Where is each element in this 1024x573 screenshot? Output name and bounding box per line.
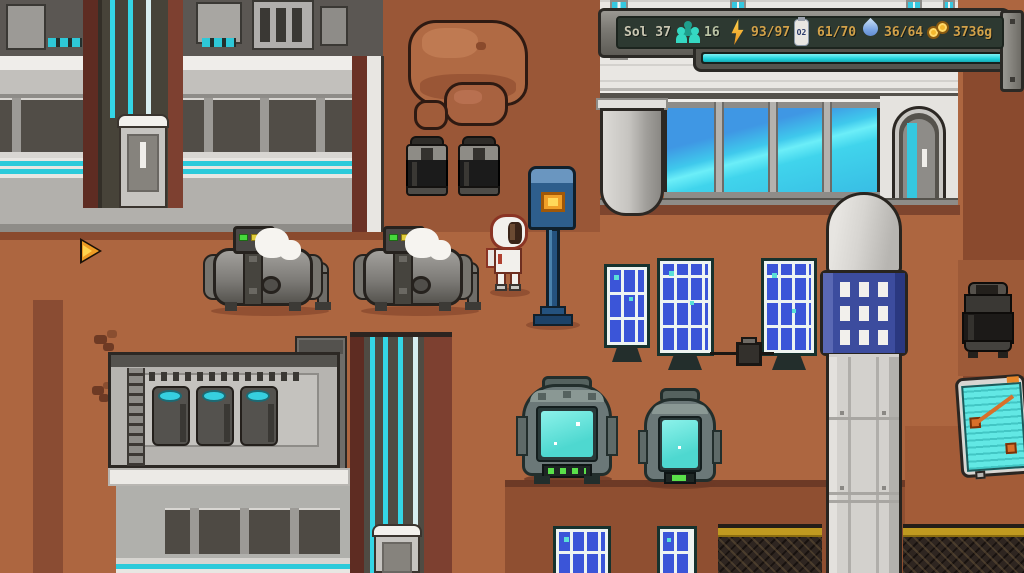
roof-equipment <box>6 4 46 50</box>
tank-bolt <box>249 288 257 294</box>
solar-glint <box>772 273 777 278</box>
platform-wall-strip <box>111 355 337 367</box>
window-band <box>0 98 383 152</box>
rocket-seam <box>876 357 879 573</box>
rivet <box>1010 19 1015 24</box>
boulder-highlight <box>422 28 478 58</box>
boulder <box>414 100 448 130</box>
tech-node <box>1005 442 1017 454</box>
shaft-side <box>83 0 98 208</box>
pipe-foot <box>465 302 481 310</box>
junction-box[interactable] <box>736 342 762 366</box>
solar-glass <box>663 264 708 350</box>
shaft-side <box>424 332 452 573</box>
machine-side-pod <box>516 416 528 456</box>
tank-bolt <box>249 256 257 262</box>
railing <box>149 372 299 381</box>
power-value: 93/97 <box>751 25 790 40</box>
arched-door[interactable] <box>892 106 946 202</box>
rocket[interactable] <box>820 192 908 573</box>
steam-puff <box>429 240 451 260</box>
rocket-seam <box>829 500 899 503</box>
tank-lid <box>202 390 226 402</box>
coins-icon <box>927 21 951 41</box>
airlock-door[interactable] <box>372 524 422 573</box>
rivet <box>1010 77 1015 82</box>
window-pillar <box>260 98 269 152</box>
storage-tank[interactable] <box>152 386 190 446</box>
solar-panel[interactable] <box>761 258 817 356</box>
astronaut-chest-strap <box>498 254 502 264</box>
tank-lid <box>246 390 270 402</box>
tank-shade <box>268 404 274 442</box>
rocket-rivet <box>882 411 886 415</box>
power-cable <box>760 352 774 355</box>
person-front-body <box>676 34 687 43</box>
monitor-corner-light <box>1007 376 1019 383</box>
shaft-side <box>350 332 364 573</box>
rock-formation[interactable] <box>398 12 548 138</box>
barrel-hatch <box>976 285 998 294</box>
incubator-machine-small[interactable] <box>638 388 722 488</box>
incubator-machine-large[interactable] <box>516 376 618 484</box>
wall-white-stripe <box>108 468 350 486</box>
monitor-foot <box>975 471 986 480</box>
solar-glint <box>669 271 674 276</box>
window-pillar <box>190 508 199 554</box>
solar-glint <box>614 275 619 280</box>
entrance-column-body <box>600 108 664 216</box>
machine-bolt <box>563 391 571 398</box>
storage-tank[interactable] <box>240 386 278 446</box>
door-handle <box>140 142 146 168</box>
credits-value: 3736g <box>953 25 992 40</box>
sol-counter: Sol 37 <box>624 25 671 40</box>
rocket-seam <box>829 492 899 495</box>
tank-lid <box>158 390 182 402</box>
barrel-emblem <box>421 148 433 160</box>
window-pillar <box>316 98 325 152</box>
energy-line <box>128 0 133 118</box>
solar-panel[interactable] <box>604 264 650 348</box>
tank-foot <box>289 302 301 311</box>
storage-tank[interactable] <box>196 386 234 446</box>
building-left <box>0 0 383 232</box>
solar-panel-base <box>772 354 806 370</box>
post-screen-glow <box>548 198 558 206</box>
airlock-door[interactable] <box>117 114 169 208</box>
rocket-window-row <box>840 330 888 345</box>
barrel-rim <box>964 340 1012 352</box>
solar-panel-base <box>668 354 702 370</box>
oxygen-tank-icon: O2 <box>794 19 809 46</box>
solar-glint <box>667 538 671 542</box>
corner-pillar <box>352 56 367 232</box>
corner-edge <box>381 56 384 232</box>
astronaut-boot <box>495 284 507 291</box>
window-pillar <box>12 98 21 152</box>
oxygen-tank-cap <box>798 17 805 21</box>
barrel-large[interactable] <box>960 282 1016 360</box>
elevator-shaft <box>83 0 183 208</box>
roof-vent <box>276 8 286 42</box>
solar-glint <box>564 537 569 542</box>
indicator-lights <box>48 38 82 47</box>
solar-panel-base <box>612 346 642 362</box>
barrel-rim <box>458 186 500 196</box>
people-icon <box>676 20 700 44</box>
boulder-crack <box>476 42 486 50</box>
tank-bolt <box>399 288 407 294</box>
machine-side-pod <box>606 416 618 456</box>
barrel-foot <box>968 352 978 358</box>
water-value: 36/64 <box>884 25 923 40</box>
rocket-window-row <box>840 282 888 297</box>
tank-foot <box>225 302 237 311</box>
tank-shade <box>224 404 230 442</box>
rocket-seam <box>829 417 899 420</box>
wall <box>0 178 383 224</box>
rocket-band-highlight <box>823 273 833 353</box>
research-monitor[interactable] <box>955 374 1024 479</box>
pipe-foot <box>315 302 331 310</box>
machine-screen <box>541 411 593 457</box>
screen-sparkle <box>678 446 681 449</box>
rocket-body-highlight <box>829 357 837 573</box>
machine-bolt <box>538 393 546 400</box>
game-viewport: Sol 37 16 93/97 O2 61/70 36/64 3736g <box>0 0 1024 573</box>
hud-progress-fill <box>703 54 1002 62</box>
steam-puff <box>279 240 301 260</box>
oxygen-tank-label: O2 <box>795 28 808 37</box>
rocket-rivet <box>840 486 844 490</box>
status-lights <box>548 468 586 474</box>
window-pillar <box>290 508 299 554</box>
tank-hatch <box>261 276 281 294</box>
solar-glass <box>610 270 644 342</box>
quest-arrow-indicator <box>80 238 102 264</box>
barrel-highlight <box>464 162 469 186</box>
boulder <box>444 82 508 126</box>
astronaut-boot <box>509 284 521 291</box>
barrel[interactable] <box>456 136 502 196</box>
energy-line <box>146 0 151 118</box>
building-bottom-left <box>105 332 455 573</box>
field-yellow-frame <box>718 528 822 537</box>
status-light-green <box>239 234 248 241</box>
status-light-green <box>389 234 398 241</box>
barrel[interactable] <box>404 136 450 196</box>
rocket-rivet <box>882 486 886 490</box>
roof-vent <box>292 8 302 42</box>
rocket-window-row <box>840 306 888 321</box>
field-soil <box>718 537 822 573</box>
barrel-emblem <box>473 148 485 160</box>
machine-side-pod <box>712 430 722 464</box>
status-light-green <box>672 475 686 481</box>
machine-side-pod <box>638 430 648 464</box>
rocket-seam <box>848 357 851 573</box>
accent-stripe <box>0 169 383 174</box>
rocket-body-shade <box>889 357 899 573</box>
rocket-rivet <box>840 411 844 415</box>
barrel-foot <box>998 352 1008 358</box>
tank-foot <box>375 302 387 311</box>
machine-top-band <box>652 404 708 414</box>
solar-panel[interactable] <box>553 526 611 573</box>
terrain-dark-stripe <box>33 300 63 573</box>
machine-foot <box>584 476 600 484</box>
wall-white-stripe <box>0 56 383 70</box>
person-front-body <box>689 34 700 43</box>
door-handle <box>922 149 927 167</box>
solar-glint <box>629 297 633 301</box>
barrel-rim <box>406 186 448 196</box>
mullion <box>714 102 724 198</box>
tank-bolt <box>399 256 407 262</box>
junction-top <box>741 337 757 345</box>
tank-hatch <box>411 276 431 294</box>
solar-panel[interactable] <box>657 526 697 573</box>
roof-equipment <box>320 6 348 46</box>
ladder[interactable] <box>127 368 145 466</box>
solar-glint <box>690 301 694 305</box>
elevator-shaft <box>350 332 452 573</box>
post-pole-highlight <box>549 230 552 310</box>
crop-field-right[interactable] <box>903 524 1024 573</box>
door-panel <box>382 542 412 573</box>
coin <box>936 21 949 34</box>
generator-tank[interactable] <box>353 226 487 318</box>
solar-panel[interactable] <box>657 258 714 356</box>
boulder-highlight <box>454 90 482 104</box>
screen-sparkle <box>554 442 557 445</box>
shaft-side <box>168 0 183 208</box>
field-yellow-frame <box>903 528 1024 537</box>
rocket-nose <box>826 192 902 274</box>
energy-line <box>110 0 115 118</box>
window-pillar <box>240 508 249 554</box>
machine-bolt <box>588 393 596 400</box>
info-post[interactable] <box>526 166 580 330</box>
barrel-highlight <box>412 162 417 186</box>
accent-stripe <box>0 161 383 166</box>
crop-field-left[interactable] <box>718 524 822 573</box>
shaft-top-edge <box>350 332 452 337</box>
generator-tank[interactable] <box>203 226 337 318</box>
oxygen-value: 61/70 <box>817 25 856 40</box>
power-cable <box>710 352 738 355</box>
machine-screen <box>662 420 698 468</box>
tank-foot <box>439 302 451 311</box>
population-value: 16 <box>704 25 720 40</box>
mullion <box>822 102 832 198</box>
barrel-highlight <box>968 315 974 341</box>
screen-sparkle <box>576 422 580 426</box>
field-soil <box>903 537 1024 573</box>
window-pillar <box>204 98 213 152</box>
tank-shade <box>180 404 186 442</box>
astronaut-hair <box>510 224 515 240</box>
door-glass-stripe <box>907 123 917 201</box>
rocket-band-shade <box>895 273 905 353</box>
stripe-band <box>116 569 350 573</box>
indicator-lights <box>202 38 236 47</box>
machine-foot <box>534 476 550 484</box>
post-base-lower <box>533 314 573 326</box>
roof-vent <box>260 8 270 42</box>
solar-glint <box>792 309 796 313</box>
mullion <box>768 102 778 198</box>
corner-wall <box>367 56 381 232</box>
astronaut-player[interactable] <box>486 214 534 298</box>
